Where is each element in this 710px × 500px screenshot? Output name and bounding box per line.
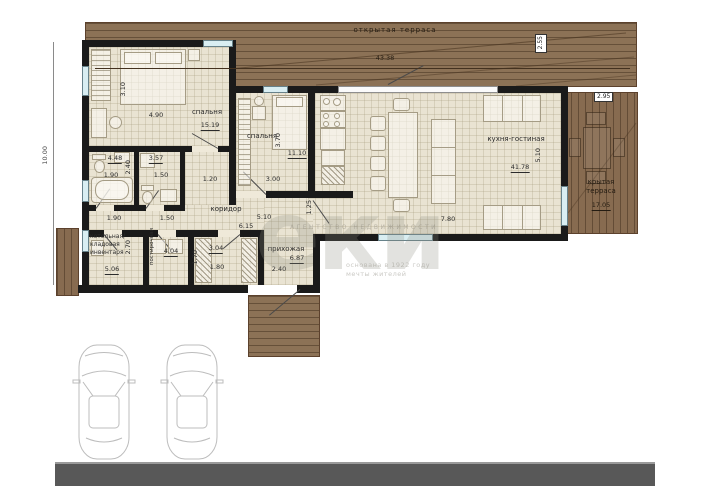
burner — [323, 121, 329, 127]
desk — [252, 106, 266, 120]
wall-segment — [229, 93, 236, 205]
bedroom1-area: 15.19 — [201, 122, 220, 129]
bedroom1-width-dim: 4.90 — [149, 112, 163, 119]
left-deck — [56, 228, 79, 296]
toilet-bowl — [142, 191, 153, 204]
living-height-dim: 5.10 — [535, 148, 542, 162]
wardrobe-area: 3.04 — [209, 245, 223, 252]
sofa-seam — [522, 95, 523, 122]
boiler-height-dim: 2.70 — [125, 240, 132, 254]
car-top-view — [158, 342, 226, 462]
bedroom2-height-dim: 3.70 — [275, 133, 282, 147]
bath1-area: 4.48 — [108, 155, 122, 162]
cabinet-divider — [431, 175, 456, 176]
sofa — [483, 205, 541, 230]
wardrobe-cabinet — [91, 49, 111, 101]
dimension-line-terrace — [95, 68, 630, 69]
bath2-area: 3.57 — [149, 155, 163, 162]
wall-segment — [78, 285, 248, 293]
terrace-chair — [586, 112, 606, 125]
bedroom1-area-value: 15.19 — [201, 121, 220, 131]
open-terrace-depth-value: 2.55 — [538, 36, 544, 49]
bedroom2-area-value: 11.10 — [288, 149, 307, 159]
open-terrace-length: 43.38 — [376, 55, 395, 62]
dimension-line-height — [53, 42, 54, 285]
chair — [254, 96, 264, 106]
boiler-name-3: инвентаря — [90, 250, 124, 256]
living-area: 41.78 — [511, 164, 530, 171]
chair — [393, 98, 410, 111]
laundry-area: 4.04 — [164, 248, 178, 255]
bath1-height-dim: 2.40 — [125, 160, 132, 174]
chair — [109, 116, 122, 129]
chair — [370, 136, 386, 151]
wall-segment — [229, 40, 236, 93]
chair — [370, 116, 386, 131]
sink-bowl — [333, 98, 341, 106]
window — [82, 230, 89, 252]
oven — [321, 150, 345, 166]
pillow — [124, 52, 151, 64]
terrace-chair — [569, 138, 581, 157]
sofa-seam — [502, 95, 503, 122]
watermark-subline-1: основана в 1922 году — [346, 261, 430, 269]
watermark-subline-2: мечты жителей — [346, 270, 406, 278]
covered-terrace-width: 2.95 — [594, 92, 613, 102]
door-opening — [96, 205, 114, 211]
wall-segment — [561, 86, 568, 186]
corridor-name: коридор — [210, 206, 241, 213]
wardrobe-height-dim: 1.70 — [192, 250, 199, 264]
car-top-view — [70, 342, 138, 462]
desk — [91, 108, 107, 138]
covered-terrace-area: 17.05 — [592, 202, 611, 209]
cabinet-divider — [431, 147, 456, 148]
sink — [160, 189, 177, 202]
boiler-name-1: котельная/ — [90, 234, 125, 240]
bathtub-inner — [95, 180, 129, 200]
kitchen-counter — [320, 128, 346, 150]
pillow — [155, 52, 182, 64]
bedroom2-area: 11.10 — [288, 150, 307, 157]
window — [203, 40, 233, 47]
nightstand — [188, 49, 200, 61]
sofa-seam — [522, 205, 523, 230]
panoramic-window — [338, 86, 498, 93]
burner — [323, 113, 329, 119]
bedroom1-height-dim: 3.10 — [120, 82, 127, 96]
open-terrace-label: открытая терраса — [353, 27, 436, 34]
covered-terrace-label-1: крытая — [588, 179, 615, 186]
boiler-area: 5.06 — [105, 266, 119, 273]
covered-terrace-area-value: 17.05 — [592, 201, 611, 211]
living-area-value: 41.78 — [511, 163, 530, 173]
open-terrace-depth: 2.55 — [535, 34, 547, 53]
boiler-width-top-dim: 1.90 — [107, 215, 121, 222]
burner — [334, 121, 340, 127]
pillow — [276, 97, 303, 107]
laundry-width-top-dim: 1.50 — [160, 215, 174, 222]
entrance-porch — [248, 295, 320, 357]
sofa-seam — [502, 205, 503, 230]
bedroom1-name: спальня — [192, 109, 222, 116]
chair — [370, 156, 386, 171]
wardrobe-width-dim: 1.80 — [210, 264, 224, 271]
bath2-area-value: 3.57 — [149, 154, 163, 164]
laundry-name: постирочная — [150, 228, 156, 265]
sink-bowl — [323, 98, 330, 105]
passage-width-dim: 1.20 — [203, 176, 217, 183]
bath2-width-dim: 1.50 — [154, 172, 168, 179]
window — [561, 186, 568, 226]
bath1-width-dim: 1.90 — [104, 172, 118, 179]
bedroom2-name: спальня — [247, 133, 277, 140]
sofa — [483, 95, 541, 122]
terrace-table — [583, 127, 611, 169]
boiler-name-2: кладовая — [90, 242, 120, 248]
door-opening — [146, 205, 164, 211]
overall-height-dim: 10.00 — [42, 146, 49, 165]
window — [263, 86, 288, 93]
wall-segment — [180, 152, 185, 205]
floor-plan-canvas: открытая терраса 43.38 2.55 2.95 крытая … — [0, 0, 710, 500]
wardrobe-cabinet — [238, 98, 251, 186]
window — [82, 66, 89, 96]
wall-segment — [134, 152, 139, 205]
road — [55, 462, 655, 486]
wardrobe-area-value: 3.04 — [209, 244, 223, 254]
corridor-dim2: 6.15 — [239, 223, 253, 230]
bath1-area-value: 4.48 — [108, 154, 122, 164]
terrace-chair — [613, 138, 625, 157]
boiler-area-value: 5.06 — [105, 265, 119, 275]
covered-terrace-label-2: терраса — [586, 188, 616, 195]
window — [82, 180, 89, 202]
laundry-area-value: 4.04 — [164, 247, 178, 257]
living-name: кухня-гостиная — [487, 136, 544, 143]
burner — [334, 113, 340, 119]
